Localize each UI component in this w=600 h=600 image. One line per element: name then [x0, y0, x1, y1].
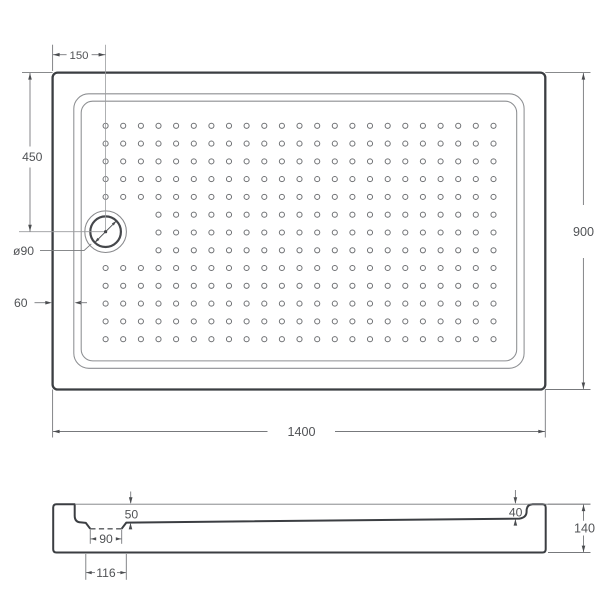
svg-text:ø90: ø90	[13, 244, 34, 258]
svg-text:116: 116	[96, 566, 116, 580]
svg-text:1400: 1400	[287, 425, 315, 439]
svg-text:150: 150	[69, 50, 88, 62]
svg-text:450: 450	[22, 150, 43, 164]
svg-text:40: 40	[509, 505, 523, 519]
svg-text:900: 900	[573, 225, 594, 239]
svg-text:90: 90	[99, 532, 113, 546]
svg-text:140: 140	[574, 521, 595, 535]
svg-text:50: 50	[125, 508, 139, 522]
svg-text:60: 60	[14, 296, 28, 310]
